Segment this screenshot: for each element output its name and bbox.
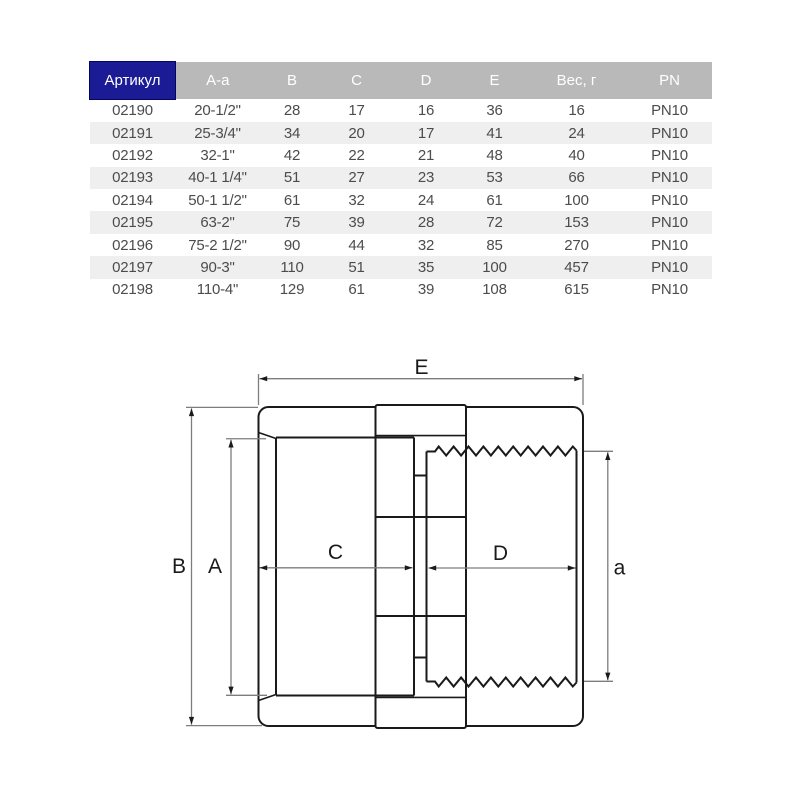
svg-text:E: E [414,356,428,379]
svg-text:A: A [208,555,222,578]
svg-text:D: D [493,542,508,565]
svg-text:a: a [614,557,626,580]
svg-text:B: B [172,555,186,578]
svg-text:C: C [328,541,343,564]
